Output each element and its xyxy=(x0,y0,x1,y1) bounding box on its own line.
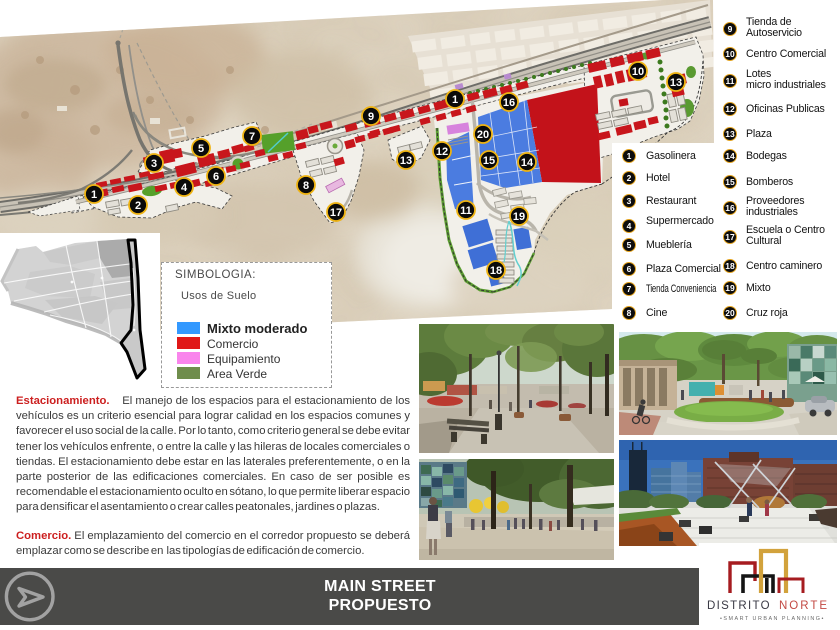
svg-text:19: 19 xyxy=(513,211,525,223)
svg-text:4: 4 xyxy=(181,182,188,194)
svg-text:9: 9 xyxy=(368,111,374,123)
svg-text:20: 20 xyxy=(477,129,489,141)
svg-text:18: 18 xyxy=(490,265,502,277)
svg-text:10: 10 xyxy=(632,66,644,78)
svg-text:DISTRITO: DISTRITO xyxy=(707,600,771,612)
svg-text:NORTE: NORTE xyxy=(779,600,829,612)
svg-text:5: 5 xyxy=(198,143,204,155)
svg-text:8: 8 xyxy=(303,180,309,192)
svg-text:11: 11 xyxy=(460,205,472,217)
svg-text:17: 17 xyxy=(330,207,342,219)
svg-text:15: 15 xyxy=(483,155,495,167)
svg-text:14: 14 xyxy=(521,157,534,169)
svg-text:6: 6 xyxy=(213,171,219,183)
svg-text:13: 13 xyxy=(670,77,682,89)
svg-text:12: 12 xyxy=(436,146,448,158)
svg-text:1: 1 xyxy=(452,94,458,106)
svg-text:•SMART URBAN PLANNING•: •SMART URBAN PLANNING• xyxy=(720,616,825,622)
svg-text:16: 16 xyxy=(503,97,515,109)
svg-text:7: 7 xyxy=(249,131,255,143)
svg-text:13: 13 xyxy=(400,155,412,167)
